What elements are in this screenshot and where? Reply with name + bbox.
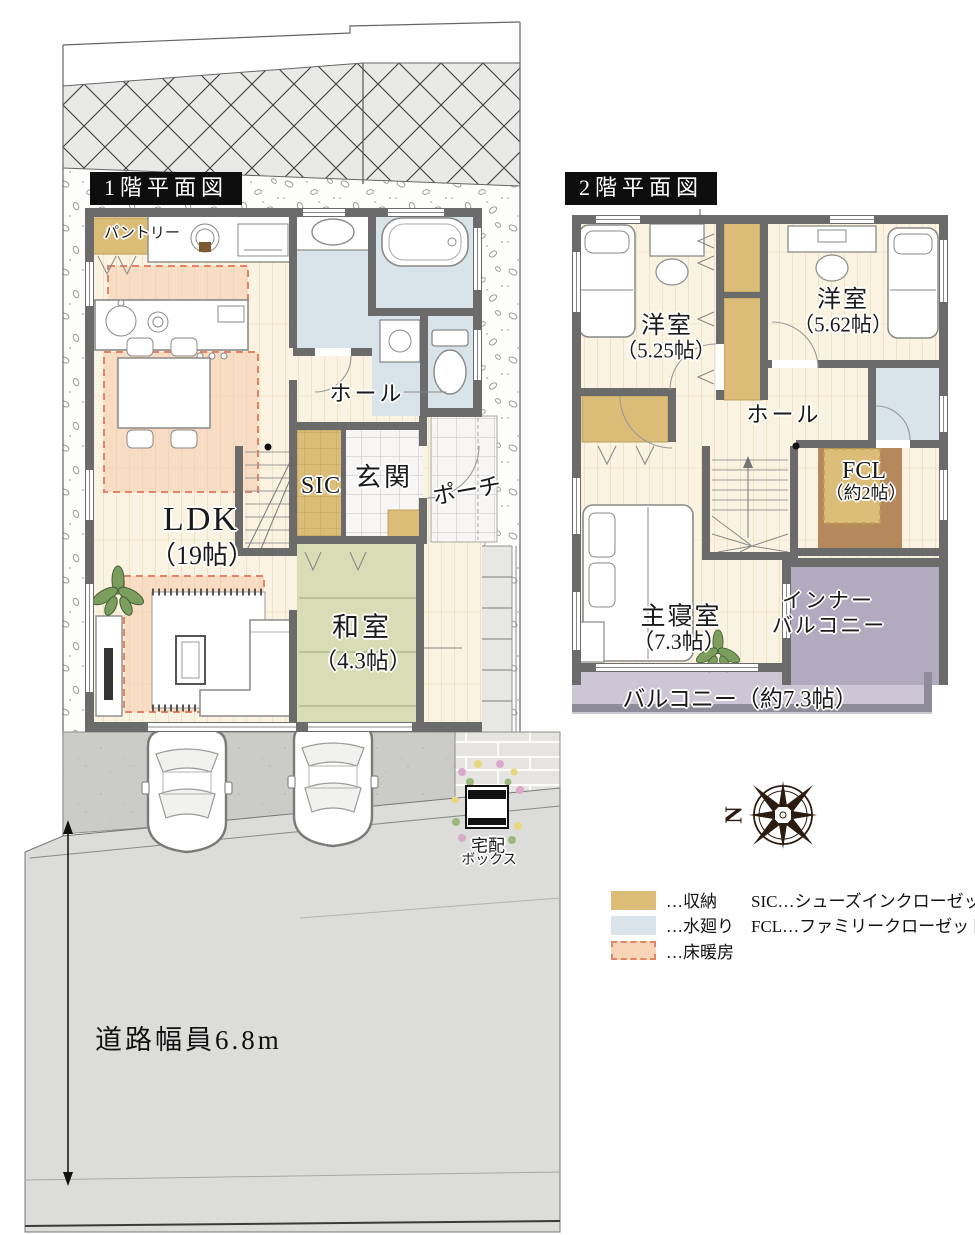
room-label-pantry: パントリー: [104, 227, 180, 242]
floor1-title-plate: 1階平面図: [90, 172, 242, 205]
room-label-washitsu-size: （4.3帖）: [314, 650, 412, 673]
house-1f: [85, 208, 497, 732]
legend-label-storage: …収納: [666, 893, 717, 910]
room-label-ldk-name: LDK: [163, 503, 239, 537]
room-label-master-name: 主寝室: [640, 605, 721, 630]
floor2-title-plate: 2階平面図: [565, 172, 717, 205]
room-label-yoshitsu1-name: 洋室: [641, 314, 693, 338]
room-label-washitsu-name: 和室: [332, 615, 392, 642]
house-2f: [572, 209, 948, 714]
room-label-master-size: （7.3帖）: [632, 631, 726, 653]
compass-icon: N: [722, 781, 818, 849]
road-width-label: 道路幅員6.8m: [95, 1018, 282, 1057]
legend-label-water: …水廻り: [666, 918, 734, 935]
room-label-yoshitsu2-size: （5.62帖）: [793, 315, 893, 336]
compass-north-label: N: [722, 806, 748, 824]
room-label-inner-balcony-2: バルコニー: [772, 616, 887, 637]
room-label-genkan: 玄関: [355, 465, 413, 491]
room-label-inner-balcony-1: インナー: [782, 591, 874, 612]
legend-swatch-floor-heating: [611, 941, 656, 960]
floorplan-page: N 1階平面図 2階平面図 パントリー ホール SIC 玄関 ポーチ LDK （…: [0, 0, 975, 1235]
legend-swatch-storage: [611, 891, 656, 910]
room-label-sic: SIC: [301, 474, 341, 498]
room-label-fcl-size: （約2帖）: [826, 484, 907, 502]
car-1: [142, 730, 232, 852]
legend-abbr-sic: SIC…シューズインクローゼット: [751, 893, 975, 910]
delivery-box-label-1: 宅配: [471, 838, 505, 855]
legend-label-floor-heating: …床暖房: [666, 944, 734, 961]
room-label-hall-2f: ホール: [746, 404, 821, 426]
room-label-ldk-size: （19帖）: [150, 543, 254, 569]
car-2: [288, 724, 378, 846]
room-label-balcony: バルコニー（約7.3帖）: [622, 688, 857, 711]
legend-swatch-water: [611, 916, 656, 935]
legend-abbr-fcl: FCL…ファミリークローゼット: [751, 918, 975, 935]
room-label-yoshitsu2-name: 洋室: [817, 288, 869, 312]
delivery-box-label-2: ボックス: [461, 854, 517, 868]
room-label-fcl-name: FCL: [842, 459, 886, 483]
room-label-hall-1f: ホール: [329, 383, 404, 405]
room-label-yoshitsu1-size: （5.25帖）: [616, 341, 716, 362]
